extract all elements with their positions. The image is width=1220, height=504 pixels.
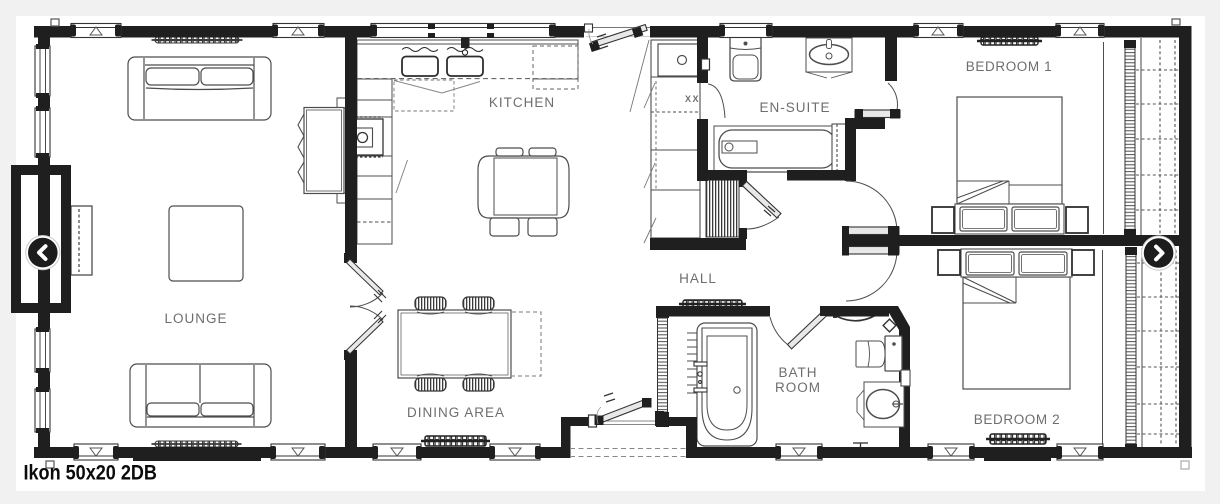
svg-text:LOUNGE: LOUNGE: [164, 311, 227, 326]
svg-text:XX: XX: [685, 94, 700, 104]
svg-text:BEDROOM 2: BEDROOM 2: [974, 412, 1060, 427]
svg-text:EN-SUITE: EN-SUITE: [759, 100, 830, 115]
svg-text:BEDROOM 1: BEDROOM 1: [966, 59, 1052, 74]
svg-text:BATH: BATH: [778, 365, 817, 380]
svg-text:HALL: HALL: [679, 271, 717, 286]
svg-text:DINING AREA: DINING AREA: [407, 405, 505, 420]
svg-text:ROOM: ROOM: [775, 380, 821, 395]
svg-text:Ikon 50x20 2DB: Ikon 50x20 2DB: [24, 461, 157, 485]
svg-text:KITCHEN: KITCHEN: [489, 95, 555, 110]
